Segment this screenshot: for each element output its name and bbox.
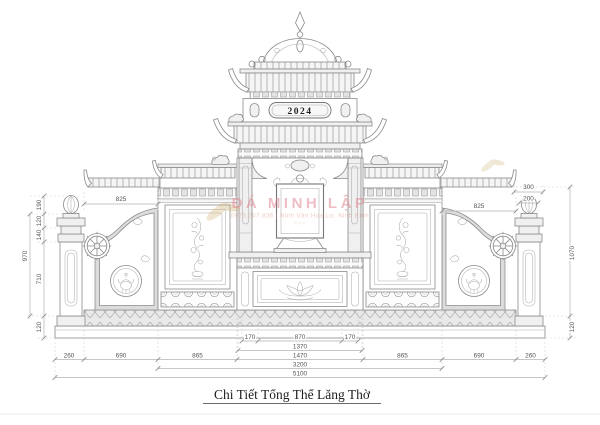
dim-5100: 5100 xyxy=(293,370,308,377)
dragon-ornament-icon xyxy=(229,114,244,122)
dim-170-right: 170 xyxy=(345,334,356,341)
upper-roof xyxy=(229,69,372,99)
dim-300: 300 xyxy=(523,184,534,191)
incense-burner-medallion-icon xyxy=(111,266,142,297)
dim-1470: 1470 xyxy=(293,352,308,359)
watermark-brand: ĐÁ MINH LẬP xyxy=(232,194,369,212)
dim-170-left: 170 xyxy=(245,334,256,341)
dim-top-right-825: 825 xyxy=(474,203,485,210)
leaf-watermark-icon xyxy=(478,155,507,174)
dim-260-r: 260 xyxy=(525,352,536,359)
year-plaque-band: 2024 xyxy=(243,99,357,123)
dharma-wheel-icon xyxy=(83,232,112,261)
year-plaque: 2024 xyxy=(288,107,313,117)
altar-base xyxy=(229,252,371,310)
dim-260-l: 260 xyxy=(64,352,75,359)
side-assembly-right xyxy=(362,155,543,326)
dim-left-120: 120 xyxy=(36,215,43,226)
watermark-contact: 0973.207.836 | Ninh Vân Hoa Lư, Ninh Bìn… xyxy=(231,214,369,220)
side-rooflet xyxy=(153,155,239,178)
dim-left-base-120: 120 xyxy=(36,321,43,332)
dim-1370: 1370 xyxy=(293,343,308,350)
dim-690-r: 690 xyxy=(474,352,485,359)
side-assembly xyxy=(57,155,238,326)
dim-865-r: 865 xyxy=(397,352,408,359)
side-rail xyxy=(84,170,160,187)
drawing-title: Chi Tiết Tổng Thể Lăng Thờ xyxy=(214,387,371,402)
dim-left-140: 140 xyxy=(36,229,43,240)
drawing-title-block: Chi Tiết Tổng Thể Lăng Thờ xyxy=(0,387,600,414)
circle-frieze xyxy=(161,292,234,307)
outer-pillar xyxy=(57,196,85,327)
carved-frieze-band xyxy=(84,310,516,326)
dragon-ornament-icon xyxy=(357,114,372,122)
dim-870: 870 xyxy=(295,334,306,341)
watermark-website: www. xyxy=(292,221,307,227)
dim-3200: 3200 xyxy=(293,361,308,368)
dim-left-710: 710 xyxy=(36,273,43,284)
shrine-elevation-drawing: 2024 xyxy=(0,0,600,425)
dim-865-l: 865 xyxy=(192,352,203,359)
dim-690-l: 690 xyxy=(116,352,127,359)
dim-right-1070: 1070 xyxy=(569,245,576,260)
dim-left-970: 970 xyxy=(22,250,29,261)
dim-top-left-825: 825 xyxy=(116,196,127,203)
dim-left-190: 190 xyxy=(36,199,43,210)
dim-right-base-120: 120 xyxy=(569,321,576,332)
scroll-wing-panel xyxy=(83,208,158,310)
flame-finial-icon xyxy=(296,12,305,31)
dim-200: 200 xyxy=(523,196,534,203)
